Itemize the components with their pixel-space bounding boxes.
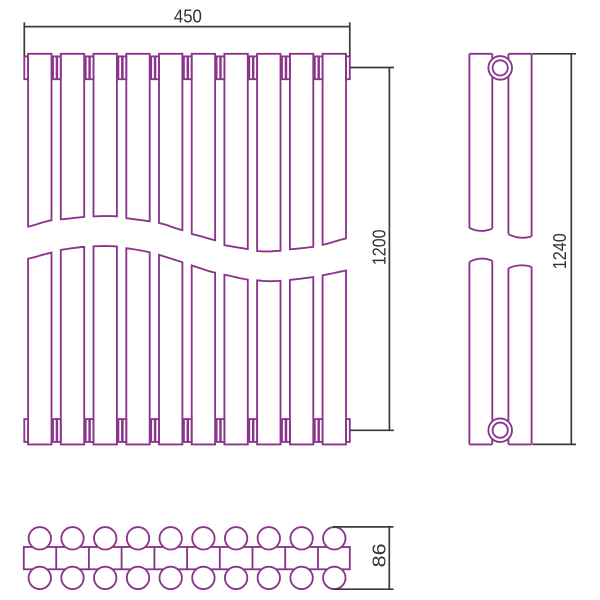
svg-text:1240: 1240 <box>549 233 570 269</box>
svg-text:450: 450 <box>174 5 202 26</box>
svg-text:1200: 1200 <box>368 229 389 265</box>
svg-text:86: 86 <box>368 543 389 567</box>
